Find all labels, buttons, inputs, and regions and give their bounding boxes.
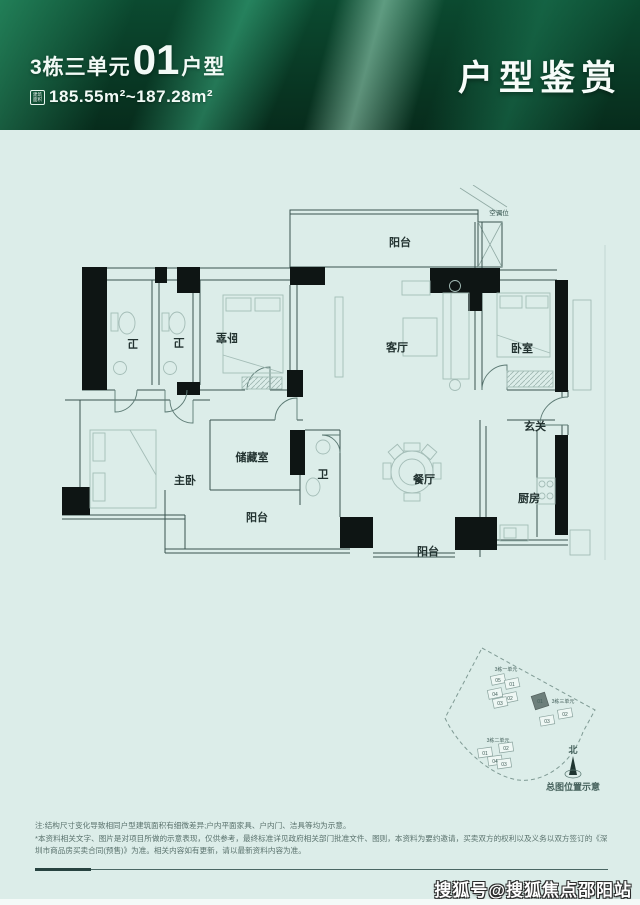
room-label-master: 主卧 xyxy=(174,473,196,487)
unit-chip-label: 05 xyxy=(495,678,501,684)
footer-rule-accent xyxy=(35,868,91,871)
room-label-dining: 餐厅 xyxy=(412,472,435,486)
unit-chip-label: 02 xyxy=(503,746,509,752)
unit-suffix: 户型 xyxy=(181,51,225,81)
unit-chip-label: 02 xyxy=(562,712,568,718)
room-label-bath-2: 卫 xyxy=(174,336,185,349)
site-clusters: 3栋一单元 05 01 04 02 03 01 3栋三单元 02 03 xyxy=(478,666,575,769)
room-label-entry: 玄关 xyxy=(524,419,546,433)
unit-title: 3栋三单元 01 户型 xyxy=(30,40,225,81)
bottom-strip xyxy=(0,899,640,905)
north-arrow: 北 xyxy=(565,744,581,778)
unit-chip-label: 04 xyxy=(492,692,498,698)
unit-number: 01 xyxy=(133,40,180,80)
room-label-storage: 储藏室 xyxy=(236,450,269,464)
page-title: 户型鉴赏 xyxy=(458,50,622,101)
room-label-balcony-left: 阳台 xyxy=(246,510,268,524)
unit-prefix: 3栋三单元 xyxy=(30,51,131,81)
north-label: 北 xyxy=(568,744,577,755)
cluster-1-name: 3栋一单元 xyxy=(495,666,518,673)
room-label-bath-1: 卫 xyxy=(128,337,139,350)
disclaimer-line-2: *本资料相关文字、图片是对项目所做的示意表现，仅供参考，最终标准详见政府相关部门… xyxy=(35,833,620,846)
unit-chip-label: 03 xyxy=(497,701,503,707)
room-label-bath-3: 卫 xyxy=(318,468,329,481)
room-label-living: 客厅 xyxy=(385,340,408,354)
floor-plan: 阳台 空调位 卫 卫 卧室 客厅 卧室 玄关 主卧 储藏室 卫 阳台 餐厅 厨房… xyxy=(45,185,630,580)
wall-blocks xyxy=(62,267,568,550)
area-line: 建筑 面积 185.55m²~187.28m² xyxy=(30,87,225,107)
north-arrow-icon xyxy=(569,756,577,775)
watermark: 搜狐号@搜狐焦点邵阳站 xyxy=(434,876,632,901)
room-label-balcony-top: 阳台 xyxy=(389,235,411,249)
poster-page: 3栋三单元 01 户型 建筑 面积 185.55m²~187.28m² 户型鉴赏 xyxy=(0,0,640,905)
unit-chip-label: 02 xyxy=(507,696,513,702)
footer-rule xyxy=(35,869,608,870)
area-icon-text2: 面积 xyxy=(33,97,42,102)
unit-chip-label: 01 xyxy=(509,682,515,688)
unit-chip-label-highlighted: 01 xyxy=(537,699,543,705)
unit-chip-label: 04 xyxy=(492,759,498,765)
unit-chip-label: 03 xyxy=(544,719,550,725)
site-map: 3栋一单元 05 01 04 02 03 01 3栋三单元 02 03 xyxy=(440,628,640,803)
disclaimer-line-3: 圳市商品房买卖合同(预售)》为准。相关内容如有更新，请以最新资料内容为准。 xyxy=(35,845,620,858)
unit-title-block: 3栋三单元 01 户型 建筑 面积 185.55m²~187.28m² xyxy=(30,40,225,107)
furniture xyxy=(90,281,555,542)
door-arcs xyxy=(115,365,568,453)
header-banner: 3栋三单元 01 户型 建筑 面积 185.55m²~187.28m² 户型鉴赏 xyxy=(0,0,640,130)
disclaimer-line-1: 注:结构尺寸变化导致相同户型建筑面积有细微差异;户内平面家具、户内门、洁具等均为… xyxy=(35,820,620,833)
floor-area-icon: 建筑 面积 xyxy=(30,90,45,105)
unit-chip-label: 01 xyxy=(482,751,488,757)
room-label-bedroom-right: 卧室 xyxy=(511,341,533,355)
room-label-ac-slot: 空调位 xyxy=(489,208,509,217)
room-label-bedroom-left: 卧室 xyxy=(216,331,238,345)
unit-chip-label: 03 xyxy=(501,762,507,768)
area-value: 185.55m²~187.28m² xyxy=(49,87,213,107)
room-label-kitchen: 厨房 xyxy=(518,491,540,505)
disclaimer: 注:结构尺寸变化导致相同户型建筑面积有细微差异;户内平面家具、户内门、洁具等均为… xyxy=(35,820,620,858)
cluster-2-name: 3栋三单元 xyxy=(552,698,575,705)
site-map-caption: 总图位置示意 xyxy=(546,781,600,792)
room-label-balcony-bottom: 阳台 xyxy=(417,544,439,558)
